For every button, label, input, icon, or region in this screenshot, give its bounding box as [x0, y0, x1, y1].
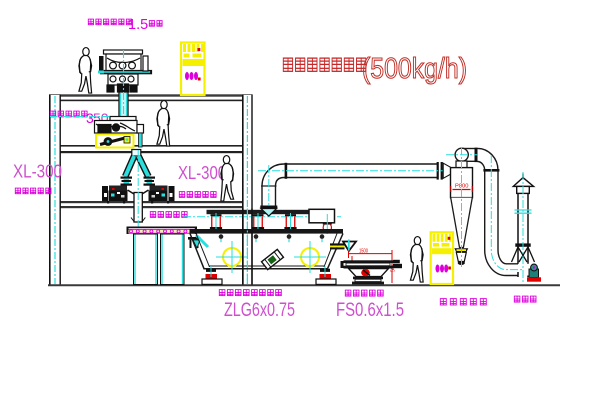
svg-text:ZLG6x0.75: ZLG6x0.75: [224, 299, 295, 321]
svg-text:1.5: 1.5: [128, 17, 148, 33]
svg-text:(500kg/h): (500kg/h): [362, 53, 467, 85]
svg-text:XL-300: XL-300: [13, 162, 62, 182]
svg-text:FS0.6x1.5: FS0.6x1.5: [336, 299, 404, 321]
svg-text:XL-300: XL-300: [178, 163, 226, 183]
svg-text:1500: 1500: [359, 248, 368, 254]
